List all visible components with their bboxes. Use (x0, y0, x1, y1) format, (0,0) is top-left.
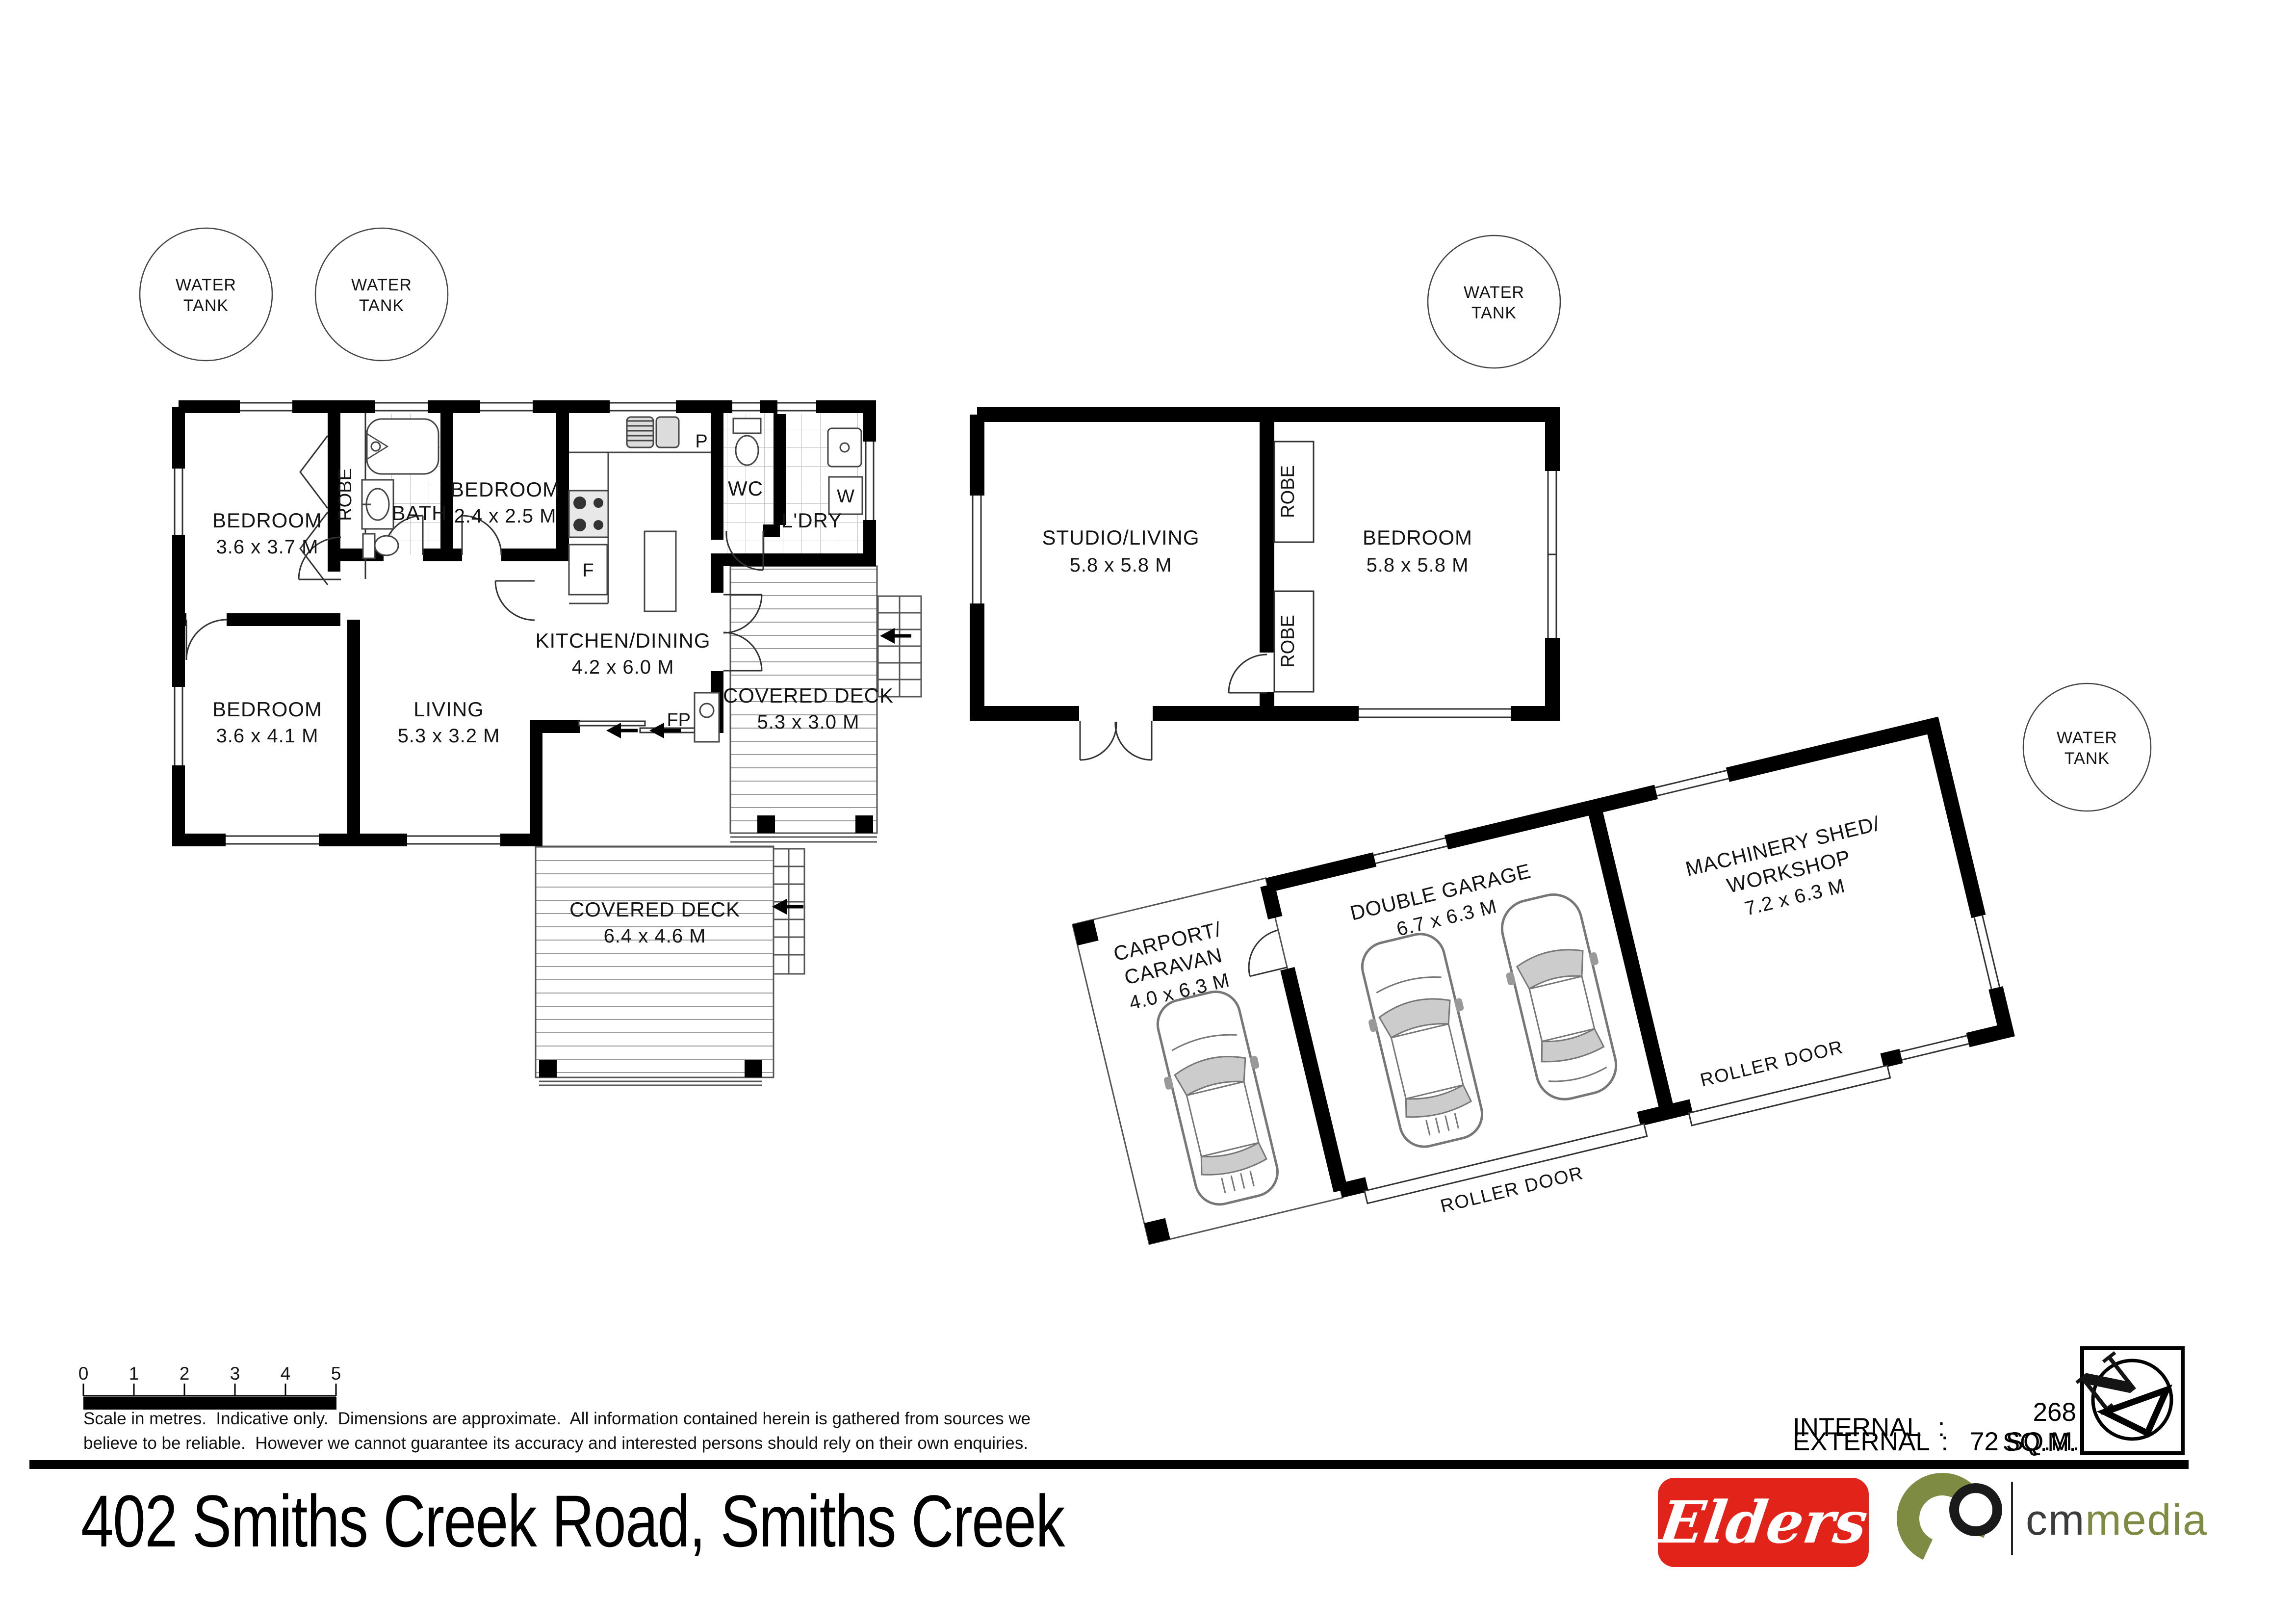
fireplace-label: FP (667, 710, 691, 731)
garage-vehicle-suv (1351, 927, 1493, 1153)
internal-area-row: INTERNAL : 268 SQ.M. (1793, 1397, 2076, 1427)
deck2-stairs (774, 849, 804, 974)
divider-rule (29, 1460, 2189, 1469)
wc-label: WC (728, 477, 763, 500)
bedroom1-label: BEDROOM (212, 509, 322, 532)
scale-tick-label: 2 (180, 1363, 190, 1384)
studio-robe2-label: ROBE (1278, 615, 1298, 668)
deck2-label: COVERED DECK (569, 898, 740, 921)
main-house: BEDROOM 3.6 x 3.7 M ROBE BATH BEDROOM 2.… (171, 399, 921, 1085)
water-tank-label: TANK (183, 296, 229, 315)
water-tank-3: WATER TANK (1428, 236, 1560, 368)
studio-label: STUDIO/LIVING (1042, 526, 1199, 549)
scale-tick-label: 5 (331, 1363, 341, 1384)
camera-lens-icon (1954, 1488, 1997, 1531)
garage-vehicle-sedan (1490, 887, 1628, 1106)
house-interior-walls (179, 413, 780, 840)
living-label: LIVING (413, 698, 484, 721)
fridge-label: F (582, 560, 593, 581)
deck1-label: COVERED DECK (723, 684, 894, 707)
water-tank-label: TANK (1471, 304, 1517, 322)
cmmedia-logo: cmmedia (1897, 1473, 2208, 1564)
floorplan-page: WATER TANK WATER TANK WATER TANK WATER T… (0, 0, 2296, 1623)
water-tank-label: WATER (2057, 729, 2117, 747)
logo-divider (2011, 1482, 2013, 1555)
cm-text: cm (2026, 1495, 2085, 1544)
vanity-sink-icon (362, 480, 393, 529)
studio-dims: 5.8 x 5.8 M (1070, 554, 1172, 576)
studio-robe1-label: ROBE (1278, 465, 1298, 518)
garage-building: CARPORT/ CARAVAN 4.0 x 6.3 M DOUBLE GARA… (1072, 715, 2026, 1285)
laundry-tub-icon (828, 428, 861, 467)
bedroom1-dims: 3.6 x 3.7 M (216, 536, 319, 558)
bedroom2-label: BEDROOM (450, 478, 560, 501)
scale-tick-label: 3 (230, 1363, 240, 1384)
bedroom3-dims: 3.6 x 4.1 M (216, 725, 319, 747)
elders-logo-text: Elders (1656, 1493, 1871, 1551)
kitchen-dims: 4.2 x 6.0 M (572, 656, 674, 678)
fireplace-icon (695, 693, 719, 742)
external-label: EXTERNAL (1793, 1427, 1930, 1457)
stove-icon (569, 491, 608, 537)
elders-logo: Elders (1658, 1478, 1869, 1567)
water-tank-label: WATER (351, 276, 412, 294)
external-value: 72 SQ.M. (1960, 1427, 2080, 1457)
svg-text:cmmedia: cmmedia (2026, 1495, 2208, 1544)
studio-building: STUDIO/LIVING 5.8 x 5.8 M BEDROOM 5.8 x … (969, 415, 1561, 760)
kitchen-island (645, 531, 676, 611)
external-separator: : (1930, 1427, 1960, 1457)
water-tank-label: WATER (1464, 283, 1524, 302)
page-title: 402 Smiths Creek Road, Smiths Creek (81, 1479, 1064, 1564)
deck1-dims: 5.3 x 3.0 M (757, 711, 860, 733)
studio-bedroom-label: BEDROOM (1363, 526, 1472, 549)
water-tank-1: WATER TANK (140, 228, 272, 361)
bedroom2-dims: 2.4 x 2.5 M (454, 505, 557, 527)
studio-bedroom-dims: 5.8 x 5.8 M (1367, 554, 1469, 576)
scale-tick-label: 4 (281, 1363, 291, 1384)
bedroom3-label: BEDROOM (212, 698, 322, 721)
scale-bar-fill (83, 1397, 336, 1410)
bathtub-icon (367, 419, 439, 474)
bath-label: BATH (392, 501, 447, 524)
disclaimer-line-1: Scale in metres. Indicative only. Dimens… (83, 1409, 1031, 1429)
water-tank-2: WATER TANK (315, 228, 448, 361)
media-text: media (2085, 1495, 2208, 1544)
kitchen-label: KITCHEN/DINING (535, 629, 710, 652)
scale-tick-label: 1 (129, 1363, 139, 1384)
deck2-dims: 6.4 x 4.6 M (604, 925, 706, 947)
scale-bar: 0 1 2 3 4 5 (78, 1363, 341, 1410)
external-area-row: EXTERNAL : 72 SQ.M. (1793, 1427, 2076, 1456)
living-dims: 5.3 x 3.2 M (398, 725, 500, 747)
pantry-label: P (695, 431, 707, 452)
scale-tick-label: 0 (78, 1363, 89, 1384)
north-arrow: N (2066, 1340, 2183, 1453)
covered-deck-2 (536, 846, 804, 1085)
robe-label: ROBE (335, 468, 356, 521)
washer-label: W (837, 486, 854, 507)
laundry-label: L'DRY (781, 509, 842, 532)
water-tank-label: TANK (2064, 749, 2110, 768)
floorplan-canvas: WATER TANK WATER TANK WATER TANK WATER T… (0, 0, 2296, 1623)
water-tank-label: WATER (176, 276, 236, 294)
sliding-door-panel (579, 721, 645, 726)
water-tank-label: TANK (359, 296, 404, 315)
water-tank-4: WATER TANK (2023, 683, 2151, 811)
deck1-stairs (878, 596, 921, 697)
disclaimer-line-2: believe to be reliable. However we canno… (83, 1434, 1028, 1453)
area-summary: INTERNAL : 268 SQ.M. EXTERNAL : 72 SQ.M. (1793, 1397, 2076, 1456)
toilet-icon-wc (733, 419, 761, 465)
